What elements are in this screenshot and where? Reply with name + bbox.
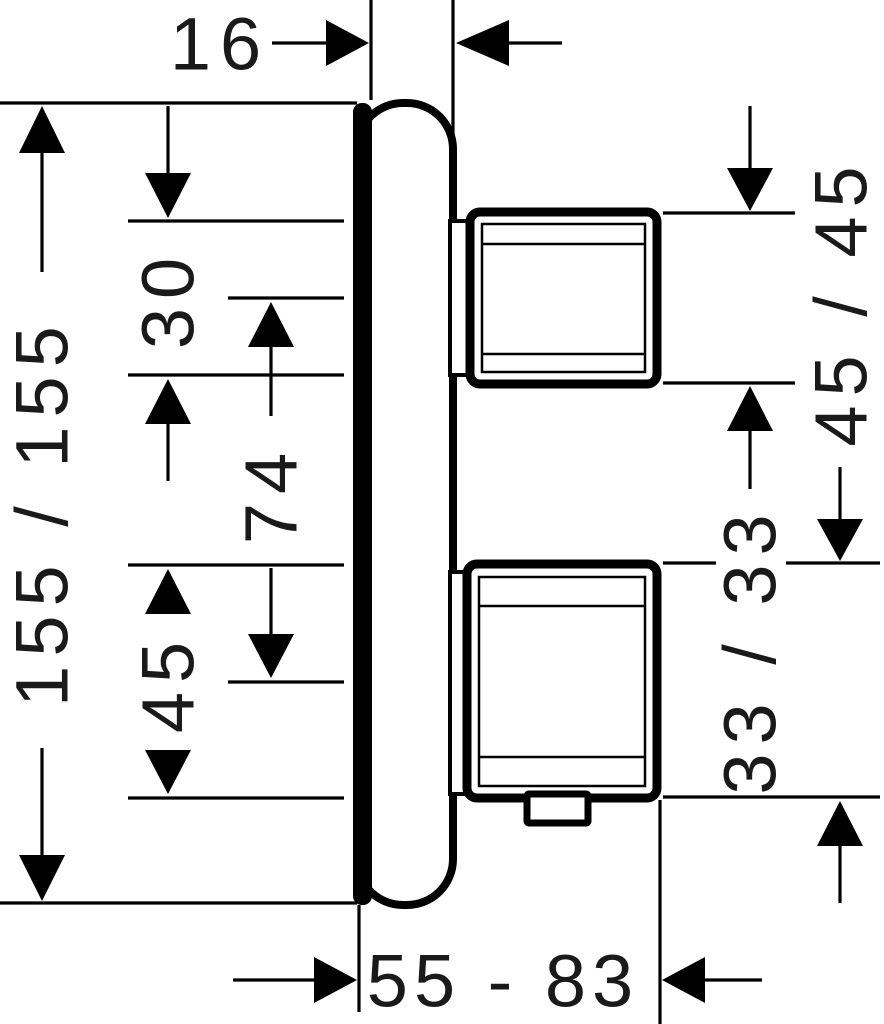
upper-handle-size-label: 33 / 33 — [709, 505, 792, 794]
arrow-down-icon — [19, 855, 65, 901]
safety-stop-tab — [527, 794, 588, 823]
dim-plate-size: 155 / 155 — [1, 106, 84, 901]
lower-handle-height-label: 45 — [127, 633, 210, 733]
plate-size-label: 155 / 155 — [1, 317, 84, 707]
arrow-down-icon — [817, 519, 863, 561]
upper-handle-body — [470, 212, 657, 384]
arrow-up-icon — [248, 302, 294, 347]
handle-spacing-label: 74 — [230, 444, 313, 544]
arrow-left-icon — [456, 20, 509, 66]
arrow-down-icon — [145, 173, 191, 218]
dimension-drawing: 16 155 / 155 30 74 45 — [0, 0, 884, 1024]
arrow-up-icon — [19, 106, 65, 153]
dim-lower-handle-size: 45 / 45 — [800, 157, 883, 903]
collar-height-label: 30 — [127, 249, 210, 349]
technical-drawing-page: 16 155 / 155 30 74 45 — [0, 0, 884, 1024]
dim-plate-projection: 16 — [170, 3, 562, 86]
fixture — [353, 103, 657, 905]
install-depth-label: 55 - 83 — [367, 940, 639, 1023]
arrow-up-icon — [817, 801, 863, 846]
arrow-up-icon — [145, 569, 191, 614]
arrow-left-icon — [662, 957, 705, 1003]
arrow-down-icon — [145, 750, 191, 794]
dim-install-depth: 55 - 83 — [233, 940, 762, 1023]
lower-handle-body — [467, 564, 657, 798]
arrow-right-icon — [314, 957, 357, 1003]
dim-lower-handle-height: 45 — [127, 569, 210, 794]
lower-handle-size-label: 45 / 45 — [800, 157, 883, 446]
arrow-up-icon — [727, 386, 773, 431]
arrow-up-icon — [145, 379, 191, 424]
escutcheon-plate-back-edge — [353, 103, 372, 905]
dim-handle-spacing: 74 — [230, 302, 313, 678]
arrow-down-icon — [248, 634, 294, 678]
arrow-down-icon — [727, 168, 773, 211]
dim-upper-handle-size: 33 / 33 — [709, 106, 792, 795]
plate-projection-label: 16 — [170, 3, 270, 86]
dim-collar-height: 30 — [127, 106, 210, 481]
arrow-right-icon — [326, 20, 369, 66]
